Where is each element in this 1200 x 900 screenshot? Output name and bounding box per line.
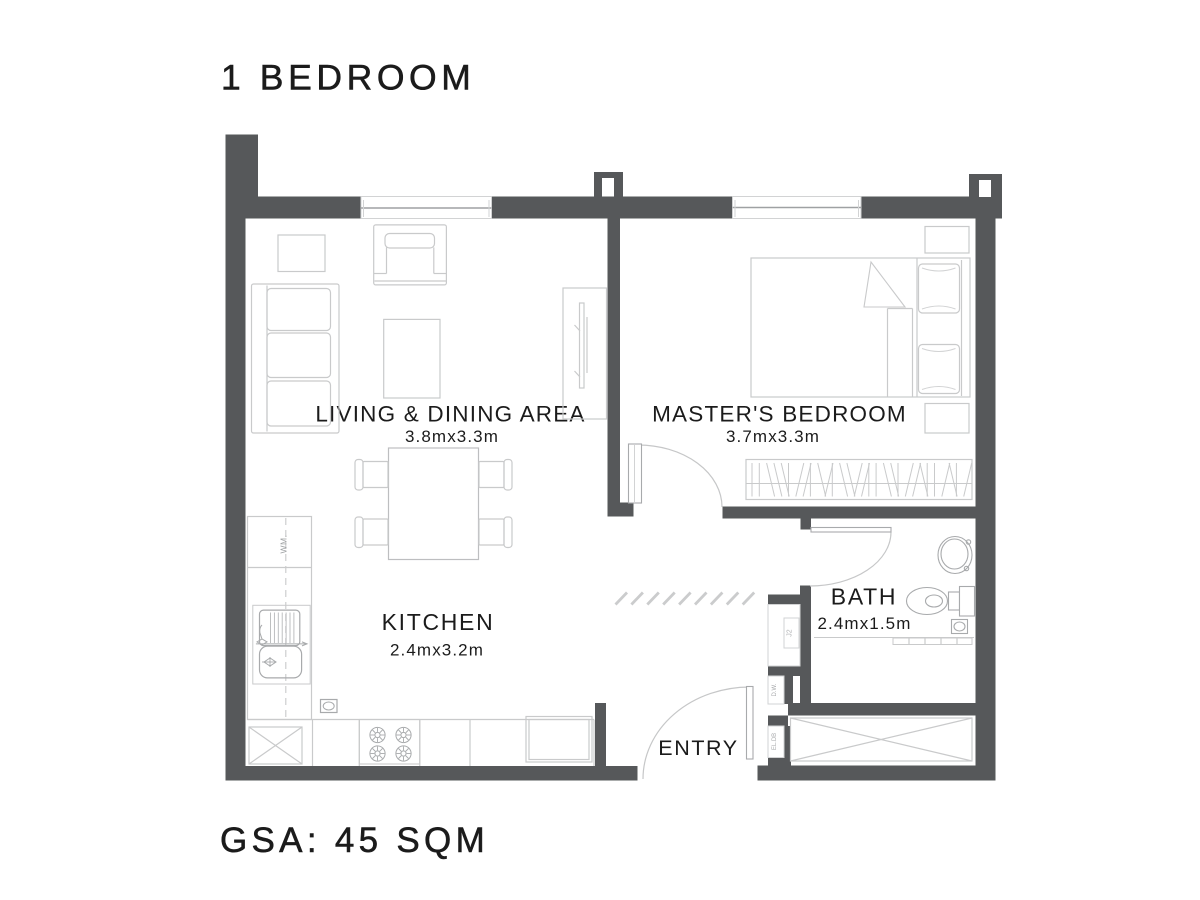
svg-text:GSA: 45 SQM: GSA: 45 SQM [220,821,489,860]
svg-text:1 BEDROOM: 1 BEDROOM [221,58,475,98]
svg-text:EL.DB: EL.DB [772,733,778,750]
svg-text:MASTER'S BEDROOM: MASTER'S BEDROOM [652,402,907,427]
svg-text:WM.: WM. [279,535,289,554]
svg-text:3.7mx3.3m: 3.7mx3.3m [726,427,820,446]
svg-text:J2: J2 [787,629,794,637]
svg-text:D.W.: D.W. [772,683,778,696]
svg-text:KITCHEN: KITCHEN [382,609,495,635]
svg-text:LIVING & DINING AREA: LIVING & DINING AREA [315,402,585,427]
svg-text:2.4mx1.5m: 2.4mx1.5m [818,614,912,633]
svg-text:3.8mx3.3m: 3.8mx3.3m [405,427,499,446]
svg-text:BATH: BATH [831,584,897,610]
svg-text:2.4mx3.2m: 2.4mx3.2m [390,641,484,660]
svg-text:ENTRY: ENTRY [658,736,738,760]
